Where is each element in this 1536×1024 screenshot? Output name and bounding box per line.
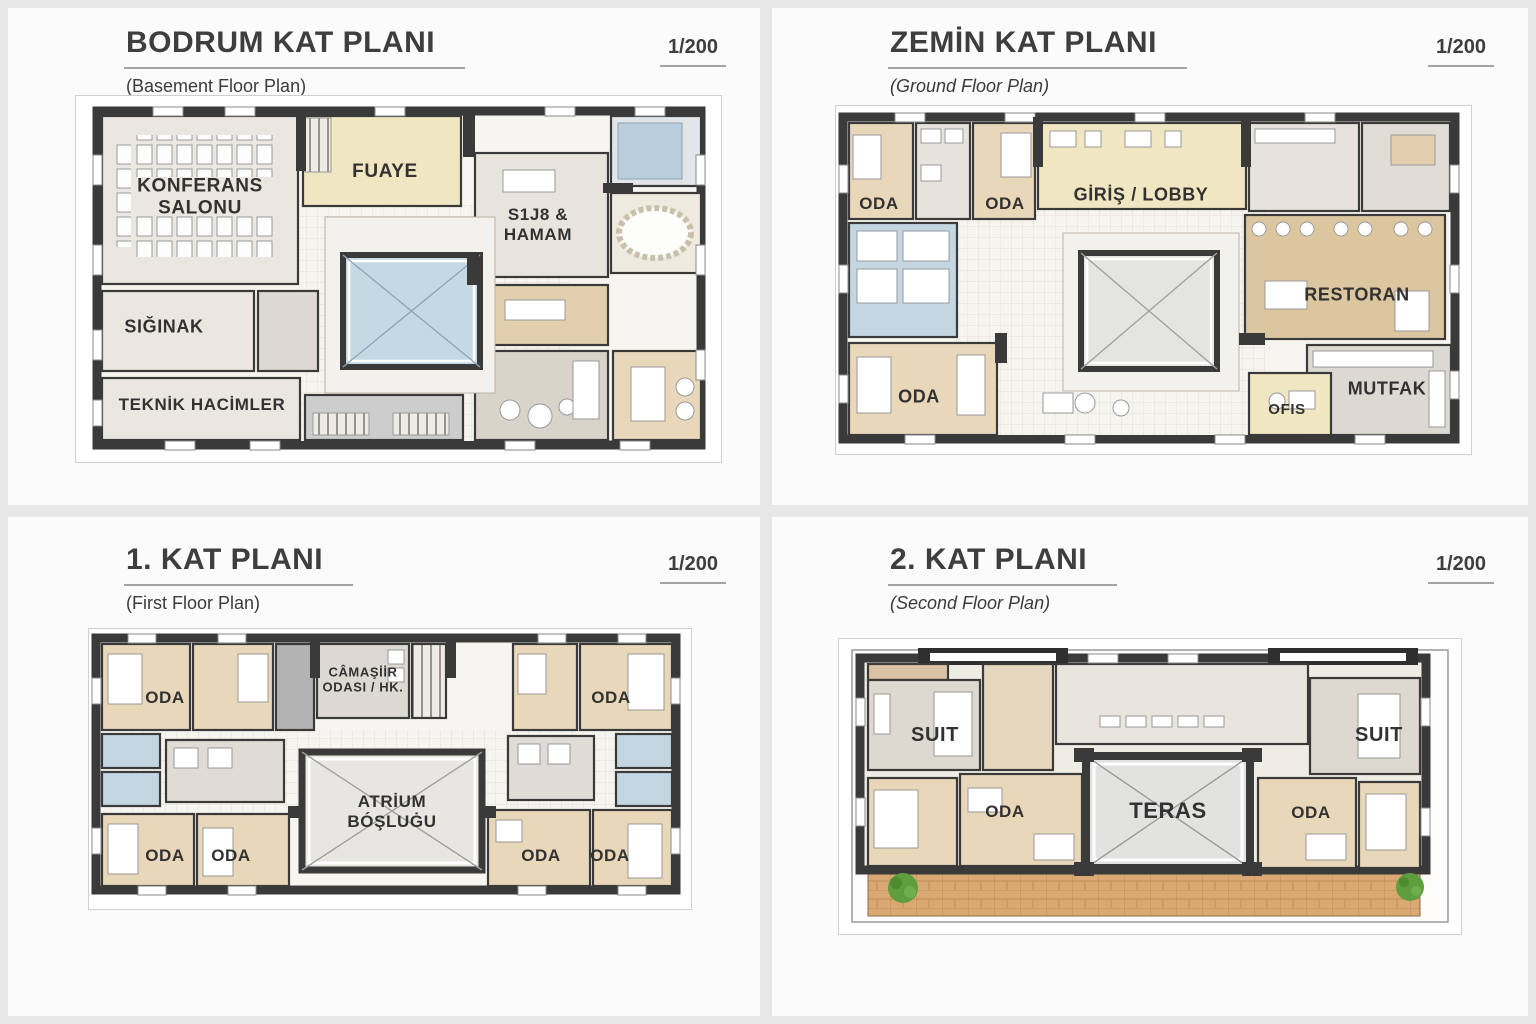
room-label-oda-3: ODA	[898, 386, 940, 407]
elevator-core	[276, 644, 314, 730]
room-label-restoran: RESTORAN	[1304, 284, 1409, 305]
room-label-atrium: ATRİUM BÓŞLUĠU	[347, 792, 436, 832]
scale-badge: 1/200	[1428, 32, 1494, 67]
page-title: ZEMİN KAT PLANI	[888, 26, 1187, 69]
room-label-siginak: SIĞINAK	[124, 316, 203, 337]
tree-icon	[1396, 873, 1424, 901]
room-label-oda-2: ODA	[985, 194, 1025, 214]
room-label-teknik: TEKNİK HACİMLER	[119, 395, 286, 415]
room-label-oda-br2: ODA	[590, 846, 630, 866]
scale-badge: 1/200	[660, 549, 726, 584]
bath-blue-right-2	[616, 772, 672, 806]
room-label-lobby: GİRİŞ / LOBBY	[1074, 184, 1209, 205]
page-title: 2. KAT PLANI	[888, 543, 1117, 586]
panel-ground: ZEMİN KAT PLANI (Ground Floor Plan) 1/20…	[772, 8, 1528, 505]
scale-badge: 1/200	[1428, 549, 1494, 584]
room-label-oda-bl1: ODA	[145, 846, 185, 866]
room-label-camasir: CÂMAŞİİR ODASI / HK.	[323, 665, 404, 696]
floor-plan-second: SUIT SUIT ODA ODA TERAS	[838, 638, 1462, 935]
room-label-oda-1: ODA	[859, 194, 899, 214]
hall-left	[983, 664, 1053, 770]
room-label-oda-left: ODA	[985, 802, 1025, 822]
panel-second-floor: 2. KAT PLANI (Second Floor Plan) 1/200	[772, 517, 1528, 1016]
floor-plan-first: ODA CÂMAŞİİR ODASI / HK. ODA ATRİUM BÓŞL…	[88, 628, 692, 910]
bath-blue-left-1	[102, 734, 160, 768]
panel-second-header: 2. KAT PLANI (Second Floor Plan) 1/200	[888, 543, 1494, 614]
room-open-hall	[1056, 664, 1308, 744]
scale-badge: 1/200	[660, 32, 726, 67]
room-label-spa-hamam: S1J8 & HAMAM	[504, 205, 572, 245]
room-label-oda-right: ODA	[1291, 803, 1331, 823]
floor-plan-basement: KONFERANS SALONU FUAYE S1J8 & HAMAM SIĞI…	[75, 95, 722, 463]
room-label-fuaye: FUAYE	[352, 161, 418, 183]
panel-first-header: 1. KAT PLANI (First Floor Plan) 1/200	[124, 543, 726, 614]
bath-blue-left-2	[102, 772, 160, 806]
plan-subtitle: (Second Floor Plan)	[888, 593, 1117, 614]
room-label-suit-left: SUIT	[911, 724, 959, 748]
page-title: 1. KAT PLANI	[124, 543, 353, 586]
tree-icon	[888, 873, 918, 903]
panel-ground-header: ZEMİN KAT PLANI (Ground Floor Plan) 1/20…	[888, 26, 1494, 97]
room-label-oda-tr: ODA	[591, 688, 631, 708]
room-label-konferans: KONFERANS SALONU	[137, 176, 263, 221]
plan-subtitle: (Ground Floor Plan)	[888, 76, 1187, 97]
page-title: BODRUM KAT PLANI	[124, 26, 465, 69]
room-label-oda-bl2: ODA	[211, 846, 251, 866]
panel-first-floor: 1. KAT PLANI (First Floor Plan) 1/200	[8, 517, 760, 1016]
wood-deck	[868, 870, 1420, 916]
plan-subtitle: (Basement Floor Plan)	[124, 76, 465, 97]
bath-blue-right-1	[616, 734, 672, 768]
room-label-oda-tl: ODA	[145, 688, 185, 708]
panel-basement-header: BODRUM KAT PLANI (Basement Floor Plan) 1…	[124, 26, 726, 97]
stair-flight	[412, 644, 446, 718]
room-label-ofis: OFIS	[1268, 401, 1305, 419]
panel-basement: BODRUM KAT PLANI (Basement Floor Plan) 1…	[8, 8, 760, 505]
room-label-oda-br1: ODA	[521, 846, 561, 866]
floor-plan-second-drawing	[838, 638, 1462, 935]
room-label-suit-right: SUIT	[1355, 724, 1403, 748]
room-label-teras: TERAS	[1129, 798, 1207, 824]
closet-strip	[868, 664, 948, 680]
plan-subtitle: (First Floor Plan)	[124, 593, 353, 614]
room-service	[258, 291, 318, 371]
floor-plan-ground: ODA ODA GİRİŞ / LOBBY RESTORAN ODA OFIS …	[835, 105, 1472, 455]
room-label-mutfak: MUTFAK	[1348, 378, 1427, 399]
